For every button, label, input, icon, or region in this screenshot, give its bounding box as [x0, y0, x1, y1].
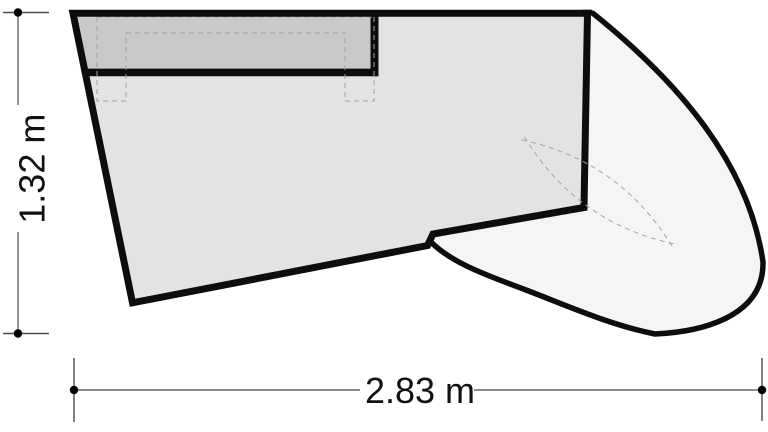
svg-text:1.32 m: 1.32 m [12, 114, 53, 224]
svg-text:2.83 m: 2.83 m [365, 370, 475, 411]
